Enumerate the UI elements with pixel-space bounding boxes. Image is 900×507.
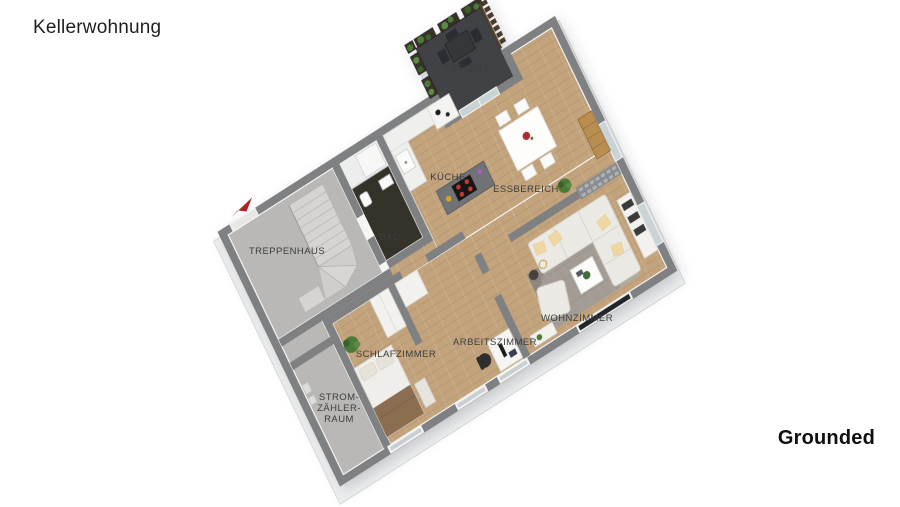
screenshot-canvas: Kellerwohnung Grounded — [0, 0, 900, 507]
floorplan-rendering: FREISITZ KÜCHE ESSBEREICH BAD TREPPENHAU… — [0, 0, 900, 507]
building — [193, 0, 677, 486]
